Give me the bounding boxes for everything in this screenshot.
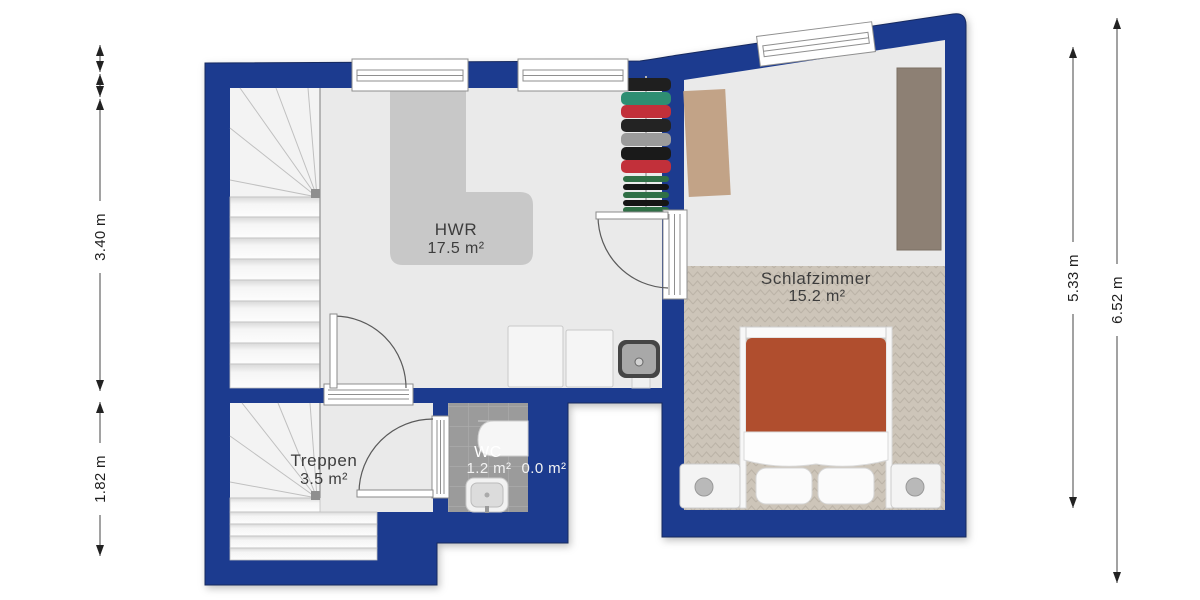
arrowhead bbox=[96, 380, 104, 391]
hanging-clothes bbox=[623, 176, 669, 182]
wc-label: WC bbox=[474, 444, 502, 461]
dim-right-outer: 6.52 m bbox=[1109, 276, 1126, 324]
folded-blanket bbox=[744, 432, 888, 466]
clothes-rack bbox=[621, 76, 671, 214]
floorplan-canvas: HWR 17.5 m² Schlafzimmer 15.2 m² Treppen… bbox=[0, 0, 1200, 600]
arrowhead bbox=[96, 74, 104, 85]
sink-drain bbox=[635, 358, 643, 366]
stair-tread bbox=[230, 322, 320, 343]
dryer bbox=[566, 330, 613, 387]
pillow bbox=[818, 468, 874, 504]
hanging-clothes bbox=[621, 119, 671, 132]
washing-machine bbox=[508, 326, 563, 387]
hanging-clothes bbox=[621, 160, 671, 173]
stair-tread bbox=[230, 301, 320, 322]
window-hwr-right bbox=[518, 59, 628, 91]
newel-post bbox=[311, 189, 320, 198]
hanging-clothes bbox=[623, 200, 669, 206]
rug bbox=[683, 89, 730, 197]
pillow bbox=[756, 468, 812, 504]
washbasin bbox=[466, 478, 508, 513]
stair-tread bbox=[230, 197, 320, 217]
lamp bbox=[906, 478, 924, 496]
arrowhead bbox=[1069, 497, 1077, 508]
hwr-area: 17.5 m² bbox=[427, 240, 484, 257]
hanging-clothes bbox=[621, 105, 671, 118]
stair-tread bbox=[230, 512, 377, 524]
staircase-upper bbox=[230, 88, 320, 388]
dim-right-inner: 5.33 m bbox=[1065, 254, 1082, 302]
window-hwr-left bbox=[352, 59, 468, 91]
stair-tread bbox=[230, 217, 320, 238]
hanging-clothes bbox=[623, 184, 669, 190]
lamp bbox=[695, 478, 713, 496]
duvet bbox=[746, 338, 886, 438]
basin-tap bbox=[485, 506, 489, 513]
bed-rail bbox=[740, 327, 746, 508]
nightstand-left bbox=[680, 464, 740, 508]
basin-drain bbox=[485, 493, 490, 498]
nightstand-right bbox=[891, 464, 941, 508]
arrowhead bbox=[1113, 572, 1121, 583]
arrowhead bbox=[1113, 18, 1121, 29]
door-leaf bbox=[330, 314, 337, 388]
stair-tread bbox=[230, 259, 320, 280]
stair-tread bbox=[230, 343, 320, 364]
hanging-clothes bbox=[621, 147, 671, 160]
newel-post bbox=[311, 491, 320, 500]
stair-tread bbox=[230, 548, 377, 560]
arrowhead bbox=[96, 402, 104, 413]
stair-tread bbox=[230, 498, 320, 512]
building: HWR 17.5 m² Schlafzimmer 15.2 m² Treppen… bbox=[205, 14, 966, 585]
wc-area: 1.2 m² bbox=[467, 460, 512, 477]
arrowhead bbox=[96, 99, 104, 110]
floorplan-svg: HWR 17.5 m² Schlafzimmer 15.2 m² Treppen… bbox=[0, 0, 1200, 600]
treppen-area: 3.5 m² bbox=[300, 471, 348, 488]
bed-footboard bbox=[746, 327, 886, 338]
dim-left-lower: 1.82 m bbox=[92, 455, 109, 503]
door-leaf bbox=[357, 490, 433, 497]
schlafzimmer-label: Schlafzimmer bbox=[761, 269, 871, 288]
arrowhead bbox=[96, 61, 104, 72]
hwr-label: HWR bbox=[435, 220, 477, 239]
arrowhead bbox=[96, 545, 104, 556]
stair-winder-area bbox=[230, 88, 320, 197]
hanging-clothes bbox=[621, 92, 671, 105]
stair-tread bbox=[230, 536, 377, 548]
stair-tread bbox=[230, 364, 320, 388]
dim-left-upper: 3.40 m bbox=[92, 213, 109, 261]
arrowhead bbox=[96, 45, 104, 56]
treppen-label: Treppen bbox=[291, 451, 358, 470]
stair-tread bbox=[230, 238, 320, 259]
stair-tread bbox=[230, 280, 320, 301]
stair-tread bbox=[230, 524, 377, 536]
arrowhead bbox=[96, 86, 104, 97]
arrowhead bbox=[1069, 47, 1077, 58]
void-area: 0.0 m² bbox=[522, 460, 567, 477]
hanging-clothes bbox=[621, 133, 671, 146]
door-leaf bbox=[596, 212, 668, 219]
hanging-clothes bbox=[623, 192, 669, 198]
wardrobe bbox=[897, 68, 941, 250]
schlafzimmer-area: 15.2 m² bbox=[788, 288, 845, 305]
